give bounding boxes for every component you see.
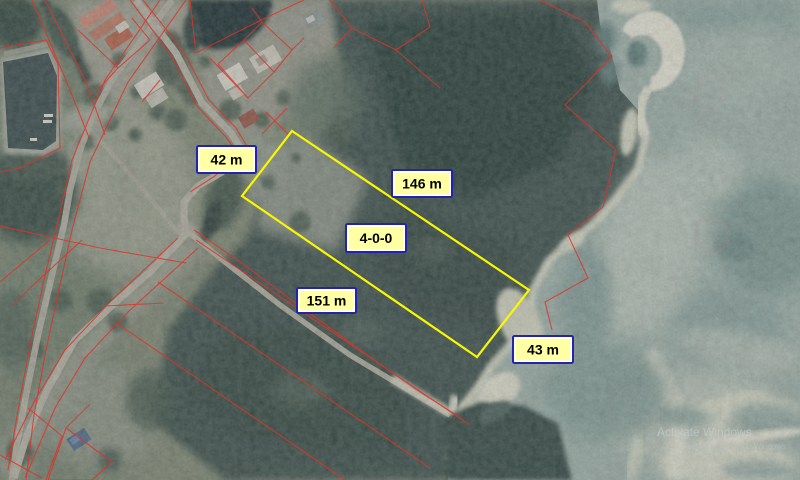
svg-text:Activate Windows: Activate Windows	[657, 425, 752, 439]
svg-text:42 m: 42 m	[211, 152, 243, 168]
svg-text:43 m: 43 m	[527, 342, 559, 358]
svg-text:146 m: 146 m	[402, 176, 442, 192]
svg-text:151 m: 151 m	[307, 293, 347, 309]
svg-text:Go to Settings to activate Win: Go to Settings to activate Windows	[662, 442, 786, 451]
svg-text:4-0-0: 4-0-0	[360, 230, 393, 246]
